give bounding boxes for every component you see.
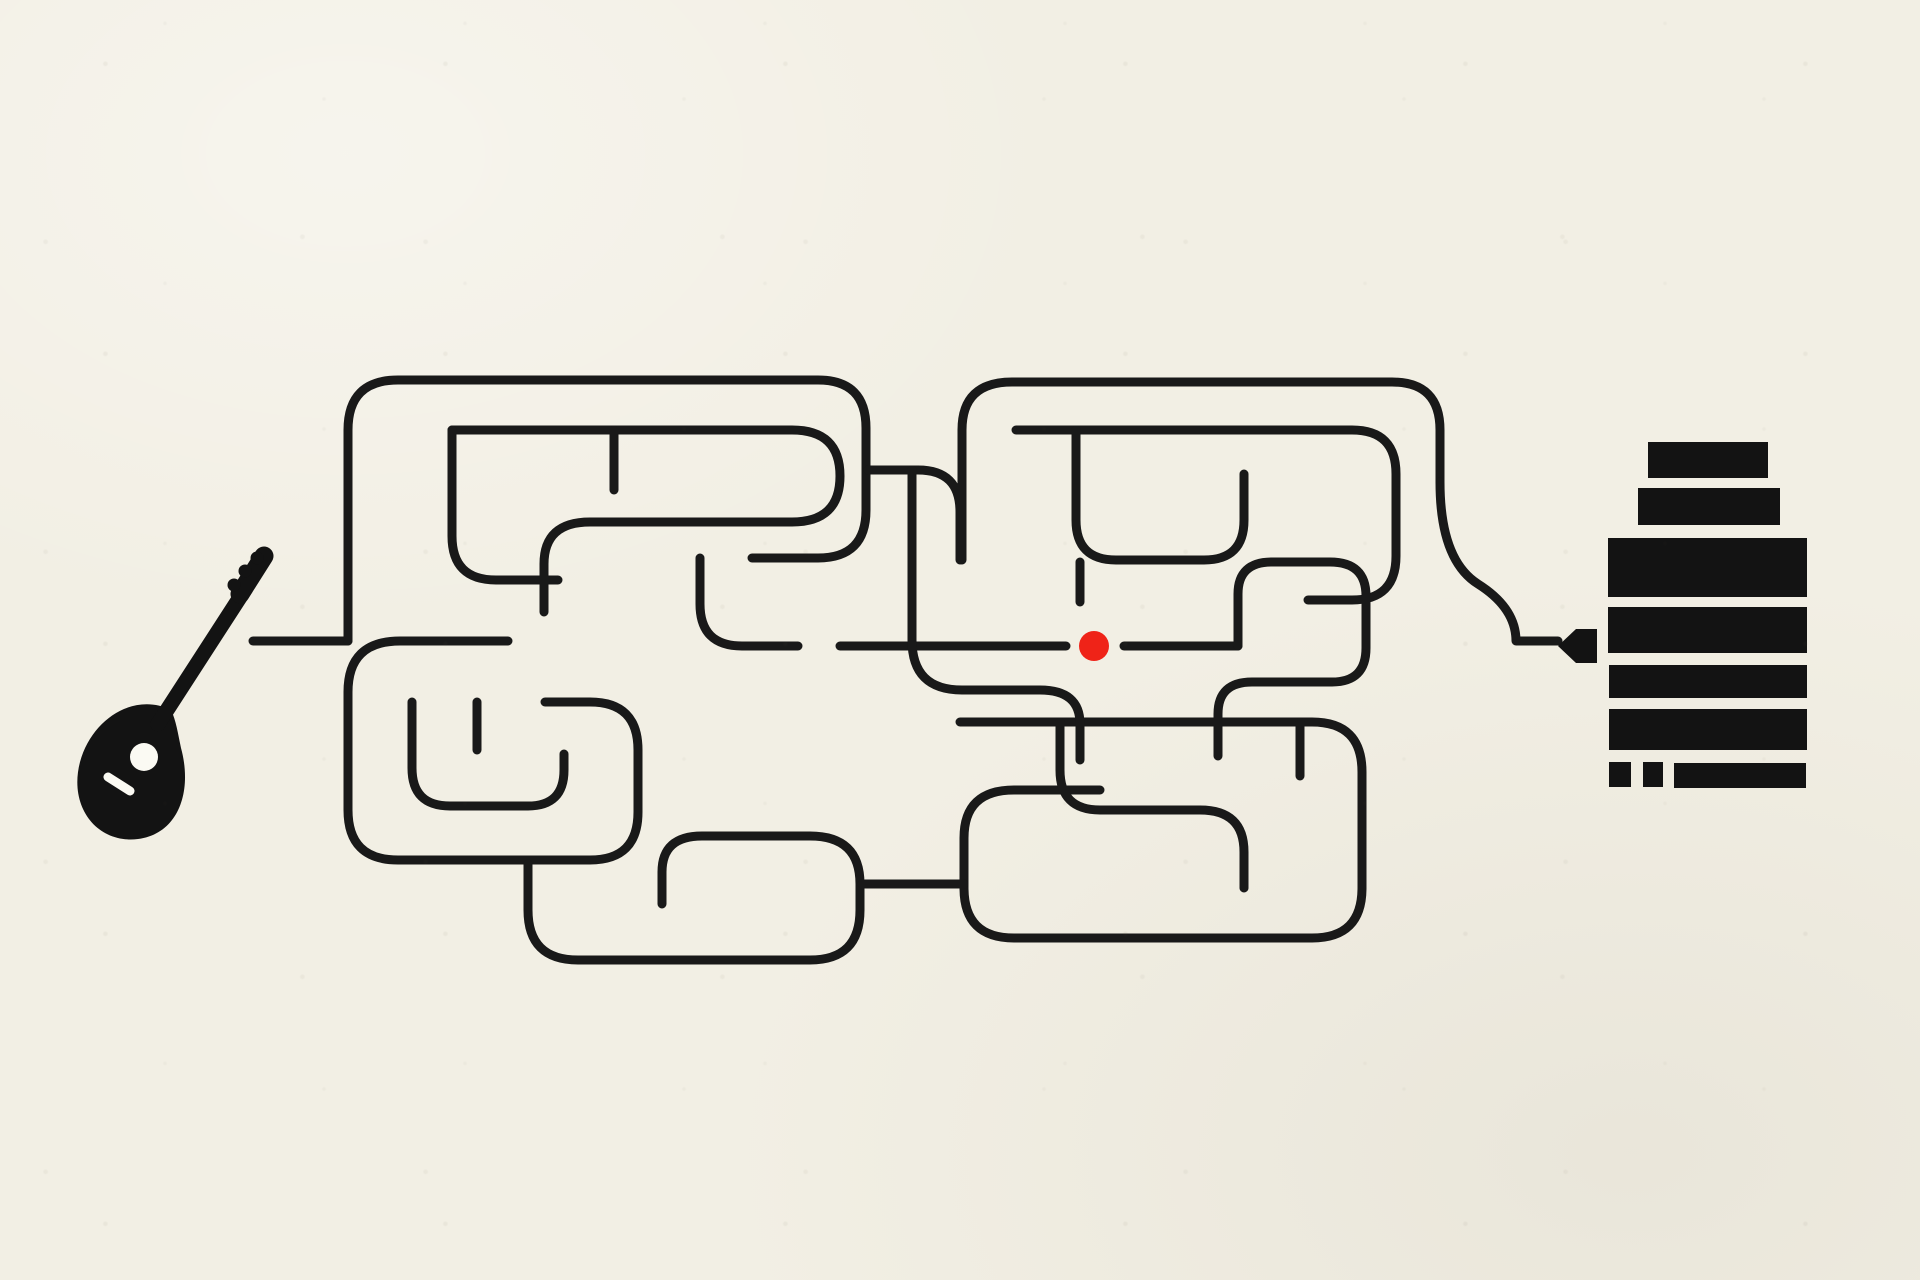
lute-body [77,704,185,839]
amp-bar [1648,442,1768,478]
maze-line [700,558,798,646]
maze-line [348,641,638,860]
amp-foot [1609,762,1631,787]
lute-neck [158,588,246,724]
maze-line [528,836,860,960]
maze-illustration [0,0,1920,1280]
plug-body [1558,629,1597,663]
maze-line [348,380,866,641]
maze-line [412,702,564,806]
maze-line [912,470,1080,760]
maze-line [452,430,840,612]
amp-bar [1608,607,1807,653]
amp-foot [1674,763,1806,788]
lute-tuning-peg [239,565,252,578]
maze-exit-cord [1440,482,1558,641]
red-dot-marker [1079,631,1109,661]
lute-tuning-peg [251,552,264,565]
illustration-canvas [0,0,1920,1280]
lute-sound-hole [130,743,158,771]
amp-bar [1609,709,1807,750]
amp-bar [1638,488,1780,525]
amplifier-icon [1608,442,1807,788]
maze-line [962,382,1440,560]
amp-bar [1608,538,1807,597]
amp-bar [1609,665,1807,698]
lute-tuning-peg [228,579,241,592]
maze [253,380,1558,960]
amp-foot [1643,762,1663,787]
lute-icon [77,552,264,840]
power-plug-icon [1558,629,1597,663]
maze-line [1076,430,1244,560]
